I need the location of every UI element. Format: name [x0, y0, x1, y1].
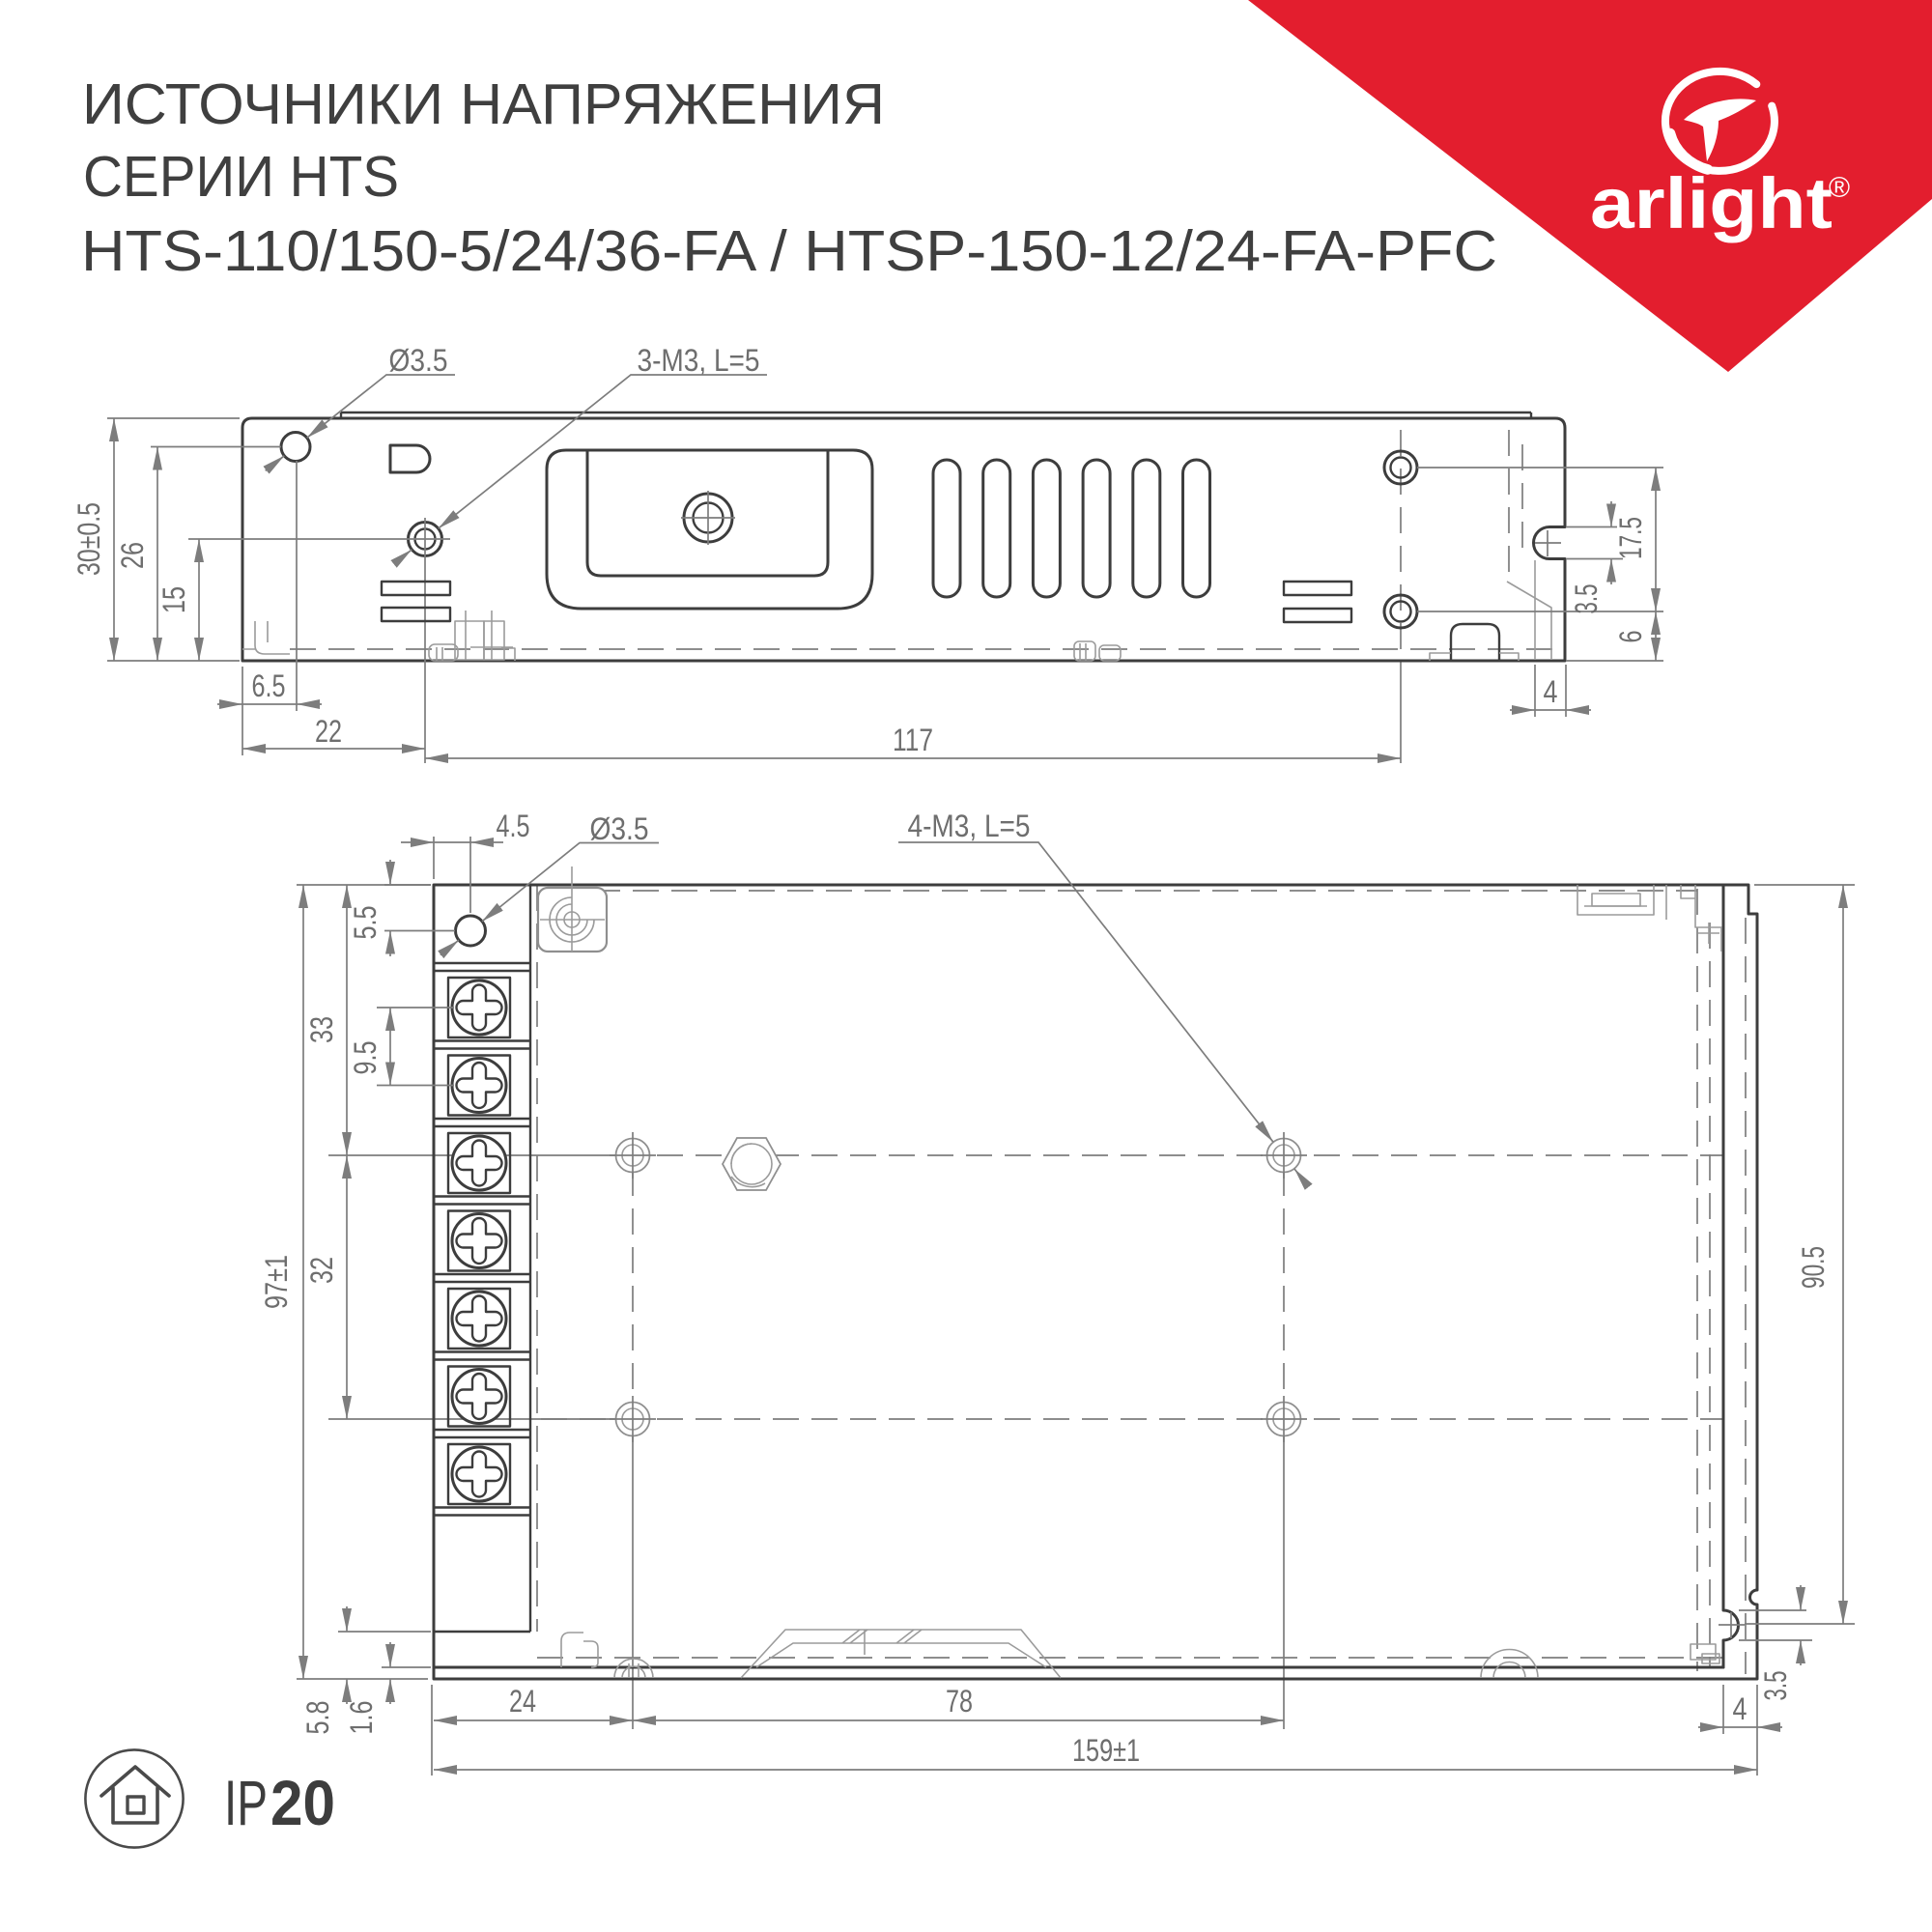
svg-text:arlight: arlight — [1590, 163, 1833, 243]
svg-text:26: 26 — [115, 542, 150, 569]
svg-text:32: 32 — [304, 1257, 339, 1284]
svg-text:Ø3.5: Ø3.5 — [389, 343, 448, 378]
svg-text:4: 4 — [1544, 674, 1558, 709]
svg-text:90.5: 90.5 — [1796, 1246, 1831, 1289]
svg-text:9.5: 9.5 — [348, 1041, 383, 1075]
svg-text:6.5: 6.5 — [252, 668, 286, 703]
svg-text:Ø3.5: Ø3.5 — [590, 811, 649, 846]
svg-text:78: 78 — [946, 1684, 973, 1719]
svg-text:5.5: 5.5 — [348, 906, 383, 940]
svg-text:3-M3, L=5: 3-M3, L=5 — [638, 343, 760, 378]
svg-text:4: 4 — [1733, 1691, 1747, 1726]
svg-text:24: 24 — [509, 1684, 536, 1719]
svg-text:97±1: 97±1 — [259, 1255, 294, 1309]
svg-text:22: 22 — [315, 714, 342, 749]
svg-text:IP: IP — [224, 1767, 268, 1838]
svg-text:159±1: 159±1 — [1072, 1733, 1140, 1768]
svg-text:4-M3, L=5: 4-M3, L=5 — [908, 809, 1031, 843]
svg-text:15: 15 — [156, 586, 191, 613]
svg-text:117: 117 — [893, 723, 933, 757]
svg-text:33: 33 — [304, 1016, 339, 1043]
svg-text:HTS-110/150-5/24/36-FA / HTSP-: HTS-110/150-5/24/36-FA / HTSP-150-12/24-… — [81, 219, 1497, 283]
svg-text:20: 20 — [270, 1767, 335, 1838]
svg-text:ИСТОЧНИКИ НАПРЯЖЕНИЯ: ИСТОЧНИКИ НАПРЯЖЕНИЯ — [82, 72, 885, 136]
svg-text:СЕРИИ HTS: СЕРИИ HTS — [83, 145, 399, 209]
svg-text:4.5: 4.5 — [497, 809, 530, 843]
svg-text:®: ® — [1829, 172, 1850, 204]
svg-text:6: 6 — [1613, 631, 1648, 643]
svg-text:1.6: 1.6 — [344, 1701, 379, 1735]
svg-text:3.5: 3.5 — [1569, 584, 1604, 614]
svg-text:17.5: 17.5 — [1613, 517, 1648, 559]
svg-text:5.8: 5.8 — [300, 1701, 335, 1735]
svg-text:30±0.5: 30±0.5 — [71, 502, 106, 576]
svg-text:3.5: 3.5 — [1758, 1671, 1793, 1701]
